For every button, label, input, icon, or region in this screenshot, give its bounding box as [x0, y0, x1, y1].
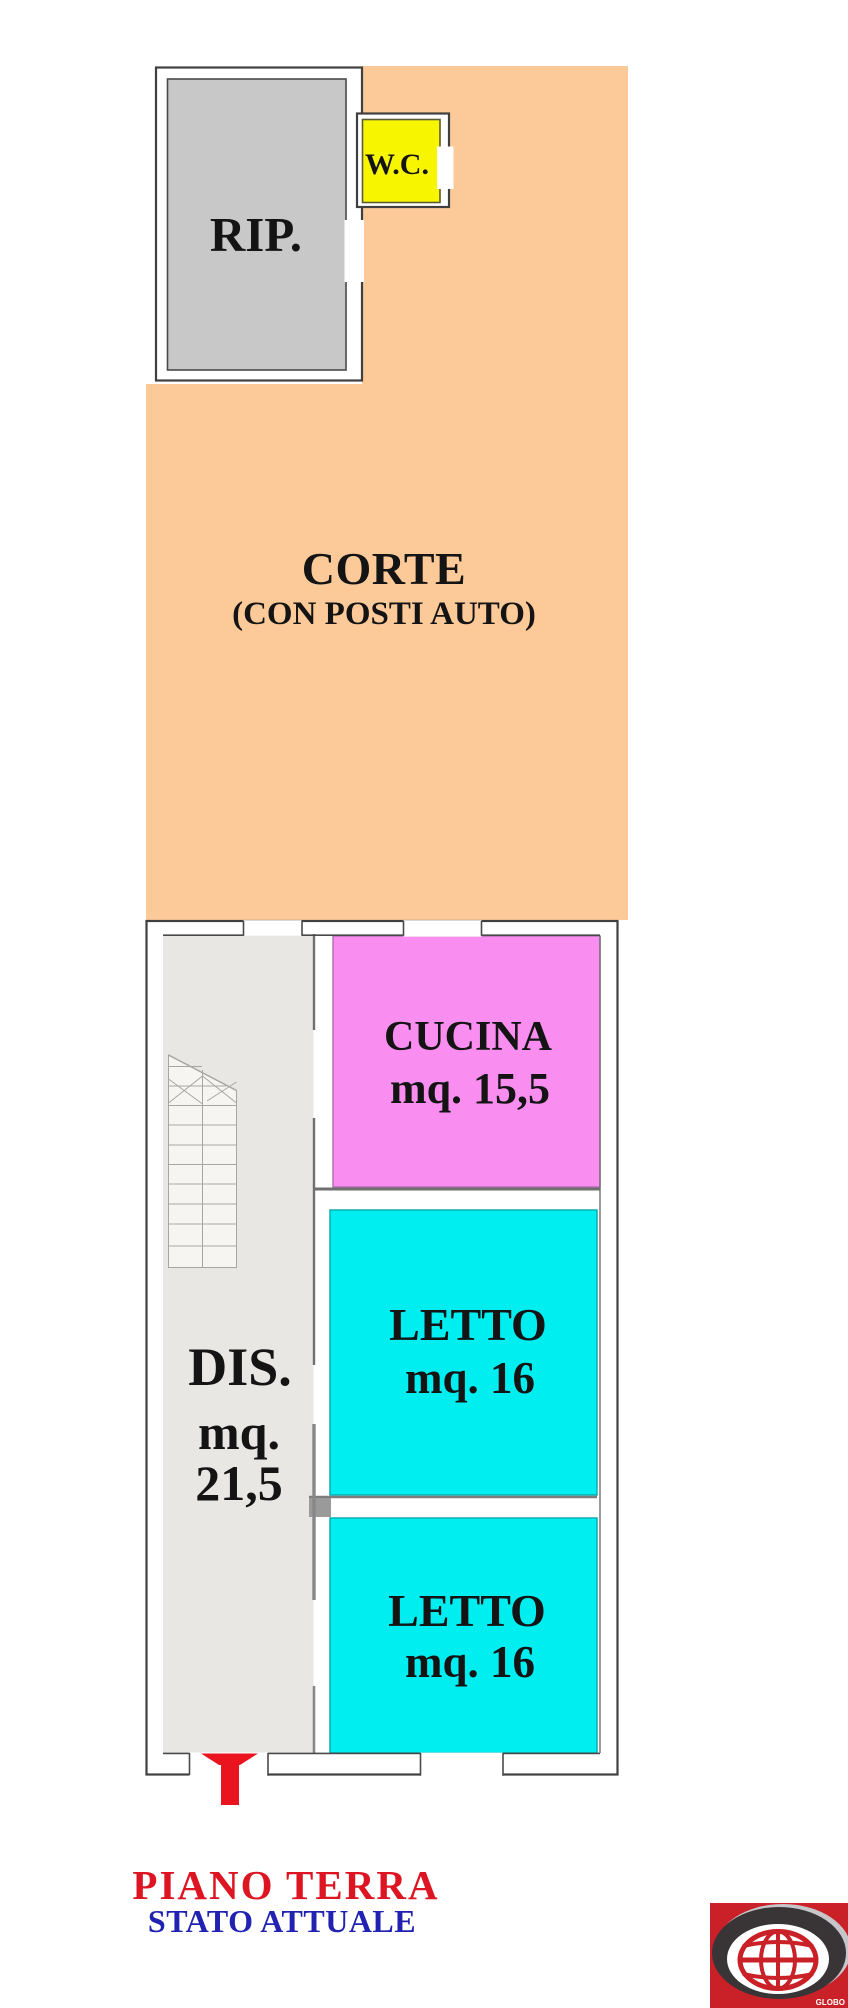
- svg-text:mq. 16: mq. 16: [405, 1637, 535, 1687]
- svg-text:21,5: 21,5: [195, 1455, 283, 1511]
- svg-text:LETTO: LETTO: [388, 1585, 546, 1636]
- svg-text:STATO ATTUALE: STATO ATTUALE: [148, 1903, 416, 1939]
- svg-text:DIS.: DIS.: [188, 1337, 292, 1397]
- svg-text:mq. 15,5: mq. 15,5: [390, 1064, 550, 1113]
- svg-text:W.C.: W.C.: [365, 148, 429, 181]
- svg-text:mq.: mq.: [198, 1404, 280, 1460]
- svg-text:LETTO: LETTO: [389, 1299, 547, 1350]
- svg-text:PIANO TERRA: PIANO TERRA: [132, 1862, 439, 1908]
- svg-text:mq. 16: mq. 16: [405, 1353, 535, 1403]
- svg-text:RIP.: RIP.: [210, 207, 302, 262]
- svg-text:CORTE: CORTE: [302, 543, 466, 594]
- svg-text:CUCINA: CUCINA: [384, 1014, 553, 1060]
- svg-text:GLOBO: GLOBO: [816, 1998, 845, 2007]
- svg-text:(CON POSTI AUTO): (CON POSTI AUTO): [232, 596, 536, 632]
